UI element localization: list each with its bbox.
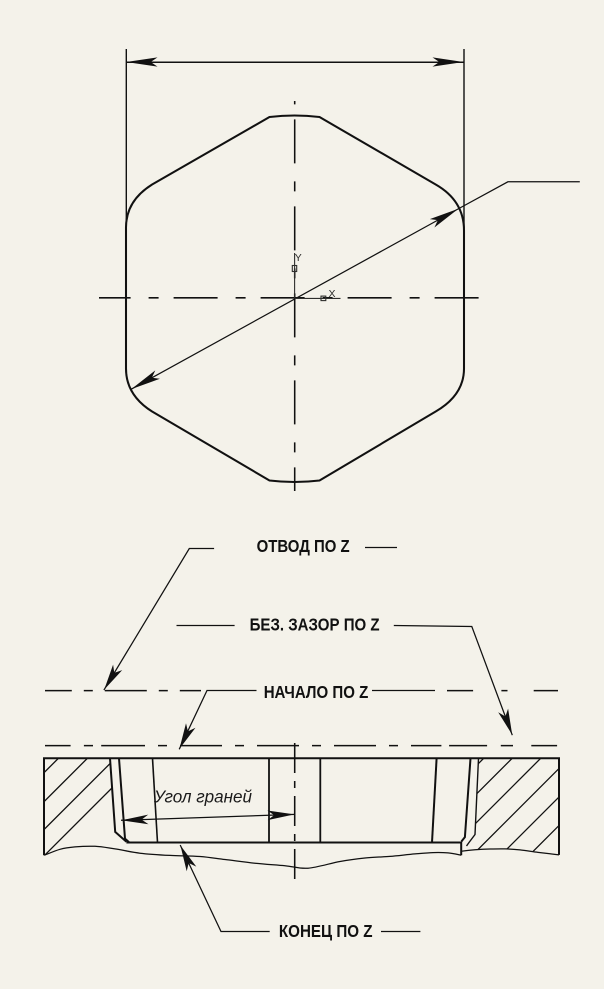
svg-text:Угол граней: Угол граней (153, 787, 252, 807)
svg-text:Y: Y (295, 252, 302, 264)
svg-text:КОНЕЦ ПО Z: КОНЕЦ ПО Z (279, 921, 373, 941)
svg-text:БЕЗ. ЗАЗОР ПО Z: БЕЗ. ЗАЗОР ПО Z (250, 615, 380, 635)
svg-text:X: X (329, 288, 336, 300)
svg-text:ОТВОД ПО Z: ОТВОД ПО Z (257, 536, 350, 556)
svg-text:НАЧАЛО ПО Z: НАЧАЛО ПО Z (264, 682, 369, 702)
